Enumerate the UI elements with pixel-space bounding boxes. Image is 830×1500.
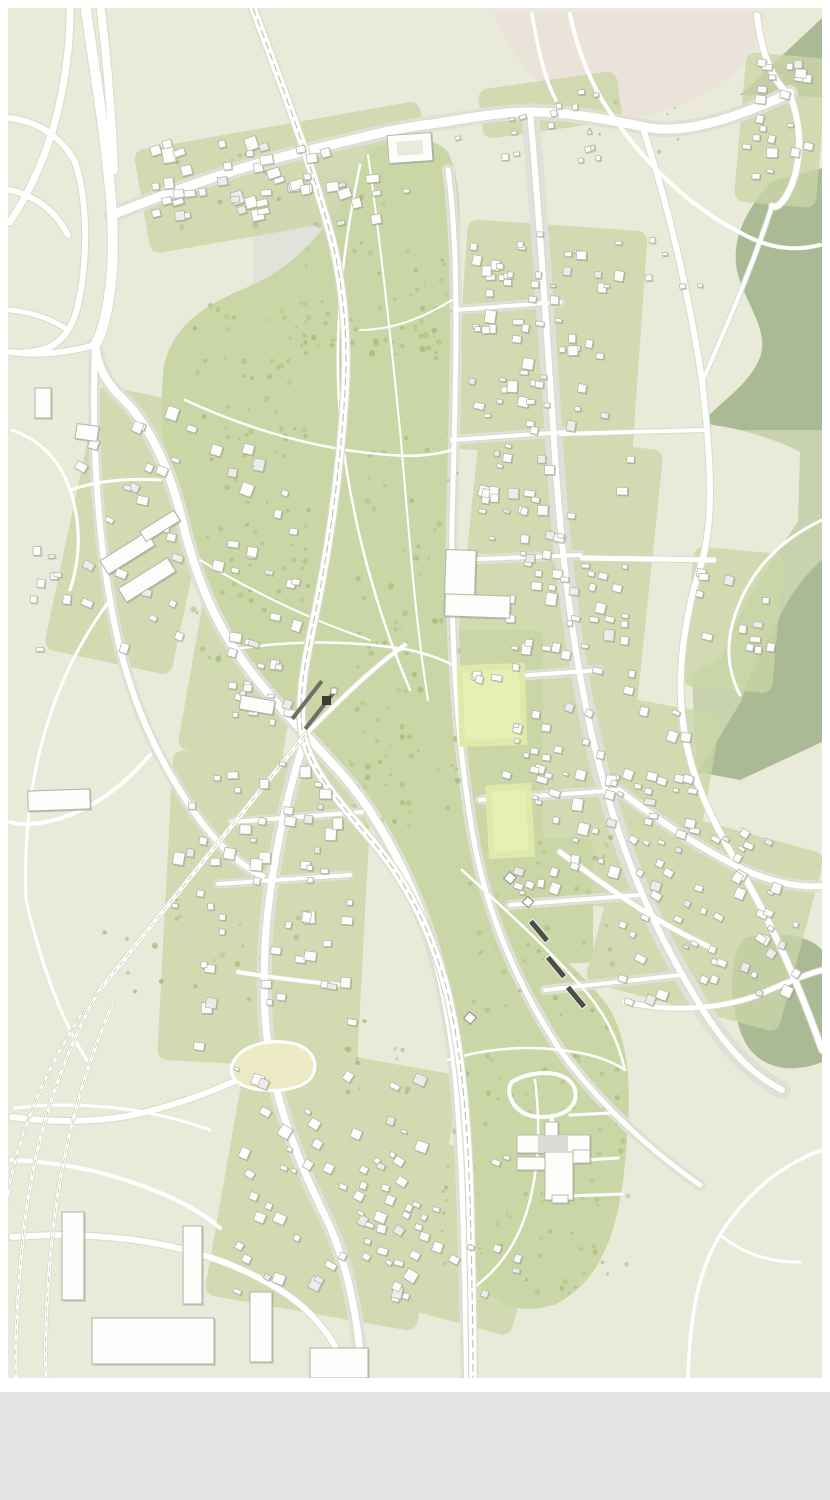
station-building xyxy=(322,696,331,705)
map-layers xyxy=(0,0,830,1383)
cross-street-east-2 xyxy=(582,558,714,560)
map-canvas xyxy=(0,0,830,1383)
village-pond xyxy=(231,1042,315,1091)
hospital-east-lane-3 xyxy=(570,1194,622,1196)
poster-page: UNTER.Wellen.Born to ? Bauhaus-Universit… xyxy=(0,0,830,1500)
hospital-courtyard xyxy=(538,1136,568,1152)
hospital-east-lane-1 xyxy=(570,1113,612,1115)
site-plan-map xyxy=(0,0,830,1383)
footer-panel: UNTER.Wellen.Born to ? Bauhaus-Universit… xyxy=(0,1392,830,1500)
